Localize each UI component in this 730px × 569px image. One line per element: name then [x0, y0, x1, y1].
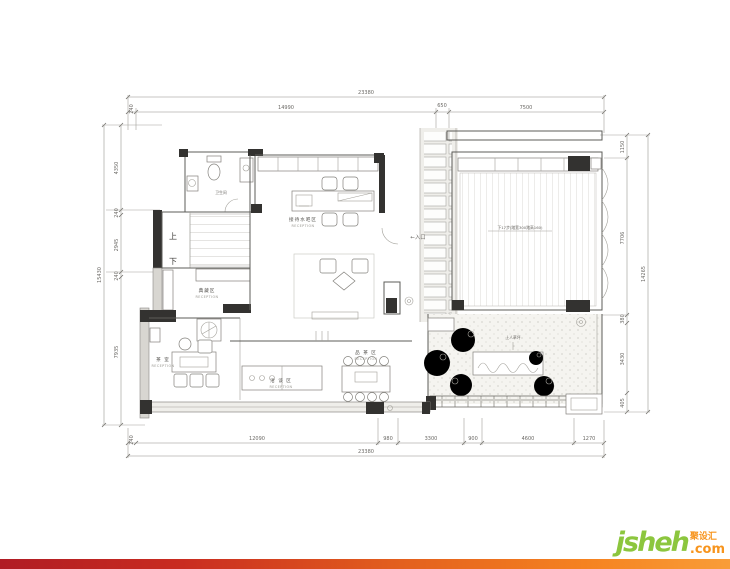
lawn-label: 上人草坪 — [505, 335, 520, 340]
dim-top-1: 14990 — [278, 105, 294, 111]
water-bar-label-en: RECEPTION — [292, 224, 315, 228]
chair — [179, 338, 191, 350]
stair-down-label: 下 — [169, 257, 177, 266]
dim-bottom-4: 900 — [468, 436, 478, 442]
display-cabinet — [196, 269, 250, 281]
door-swing — [382, 228, 398, 244]
dim-top-2: 650 — [437, 103, 447, 109]
chair — [322, 177, 337, 190]
door-swing — [225, 199, 238, 212]
left-building: 卫生间 上 下 典藏区 RECEPTION — [140, 149, 430, 418]
chair — [343, 213, 358, 226]
dimension-chain-left: 15430 4350 240 2945 240 7935 — [97, 123, 162, 427]
tree-symbol — [451, 328, 475, 352]
toilet-symbol — [208, 164, 220, 180]
column-post — [568, 156, 590, 171]
chair — [380, 393, 389, 402]
chair — [198, 340, 212, 353]
stair-up-label: 上 — [169, 232, 177, 241]
tea-room-label-en: RECEPTION — [152, 364, 175, 368]
watermark-logo: jsheh 聚设汇 .com — [616, 529, 725, 556]
column-post — [452, 300, 464, 310]
negotiation-label: 洽 谈 区 — [270, 377, 292, 384]
bottom-gradient-bar — [0, 559, 730, 569]
dim-top-pre: 240 — [129, 104, 135, 114]
watermark-tld-text: .com — [690, 543, 725, 556]
dim-bottom-pre: 240 — [129, 435, 135, 445]
dimension-chain-top: 23380 240 14990 650 7500 — [126, 90, 606, 133]
display-cabinet — [163, 270, 173, 310]
tree-symbol — [424, 350, 450, 376]
deck-stair-note: 下17步(踏宽300踏高160) — [497, 225, 543, 230]
dim-bottom-6: 1270 — [583, 436, 596, 442]
water-bar-label: 接待水吧区 — [289, 216, 317, 223]
room-water-bar: 接待水吧区 RECEPTION — [255, 153, 413, 319]
wall — [153, 268, 162, 312]
armchair — [352, 259, 368, 273]
bathroom-label: 卫生间 — [215, 190, 227, 195]
dim-right-3: 380 — [620, 314, 626, 324]
dim-left-2: 240 — [114, 208, 120, 218]
dim-left-4: 240 — [114, 271, 120, 281]
floor-plan-page: 23380 240 14990 650 7500 15430 4350 240 … — [0, 0, 730, 569]
entrance-label: ←入口 — [410, 234, 425, 241]
dim-bottom-3: 3300 — [425, 436, 438, 442]
dim-top-3: 7500 — [520, 105, 533, 111]
chair — [190, 374, 203, 387]
dim-left-1: 4350 — [114, 162, 120, 175]
dim-left-3: 2945 — [114, 239, 120, 252]
dimension-chain-right: 1150 7706 380 3430 405 14265 — [600, 133, 650, 414]
room-tea: 茶 室 RECEPTION — [149, 318, 240, 400]
dim-right-1: 1150 — [620, 141, 626, 154]
dim-right-2: 7706 — [620, 232, 626, 245]
dim-right-4: 3430 — [620, 353, 626, 366]
bottom-wall — [140, 400, 430, 414]
collection-label-en: RECEPTION — [196, 295, 219, 299]
chair — [356, 393, 365, 402]
vanity-symbol — [240, 158, 253, 182]
sunken-courtyard: 上人草坪 — [424, 314, 602, 414]
tea-tasting-table — [342, 366, 390, 392]
dim-bottom-5: 4600 — [522, 436, 535, 442]
dim-right-5: 405 — [620, 398, 626, 408]
armchair — [320, 259, 336, 273]
tea-tasting-label-en: RECEPTION — [355, 357, 378, 361]
dim-bottom-1: 12090 — [249, 436, 265, 442]
deck-room: 下17步(踏宽300踏高160) — [447, 131, 608, 312]
chair — [174, 374, 187, 387]
side-table — [333, 272, 355, 290]
negotiation-label-en: RECEPTION — [270, 385, 293, 389]
tree-symbol — [450, 374, 472, 396]
dimension-chain-bottom: 240 12090 980 3300 900 4600 1270 23380 — [126, 418, 606, 458]
wall — [153, 210, 162, 270]
dim-bottom-overall: 23380 — [358, 449, 374, 455]
chair — [344, 357, 353, 366]
chair — [343, 177, 358, 190]
dim-top-overall: 23380 — [358, 90, 374, 96]
chair — [344, 393, 353, 402]
chair — [206, 374, 219, 387]
dim-right-overall: 14265 — [641, 266, 647, 282]
tea-table — [172, 352, 216, 372]
chair — [368, 393, 377, 402]
room-tea-tasting: 品 茶 区 RECEPTION — [342, 349, 390, 402]
dim-left-5: 7935 — [114, 346, 120, 359]
watermark-cn-text: 聚设汇 — [690, 533, 717, 542]
floor-plan-drawing: 23380 240 14990 650 7500 15430 4350 240 … — [0, 0, 730, 569]
tea-room-label: 茶 室 — [156, 356, 170, 363]
column-post — [566, 300, 590, 312]
dim-left-overall: 15430 — [97, 267, 103, 283]
tea-tasting-label: 品 茶 区 — [355, 349, 377, 356]
watermark-brand-text: jsheh — [616, 529, 688, 556]
chair — [322, 213, 337, 226]
chair — [380, 357, 389, 366]
dim-bottom-2: 980 — [383, 436, 393, 442]
staircase: 上 下 — [162, 212, 250, 268]
collection-label: 典藏区 — [199, 287, 216, 294]
